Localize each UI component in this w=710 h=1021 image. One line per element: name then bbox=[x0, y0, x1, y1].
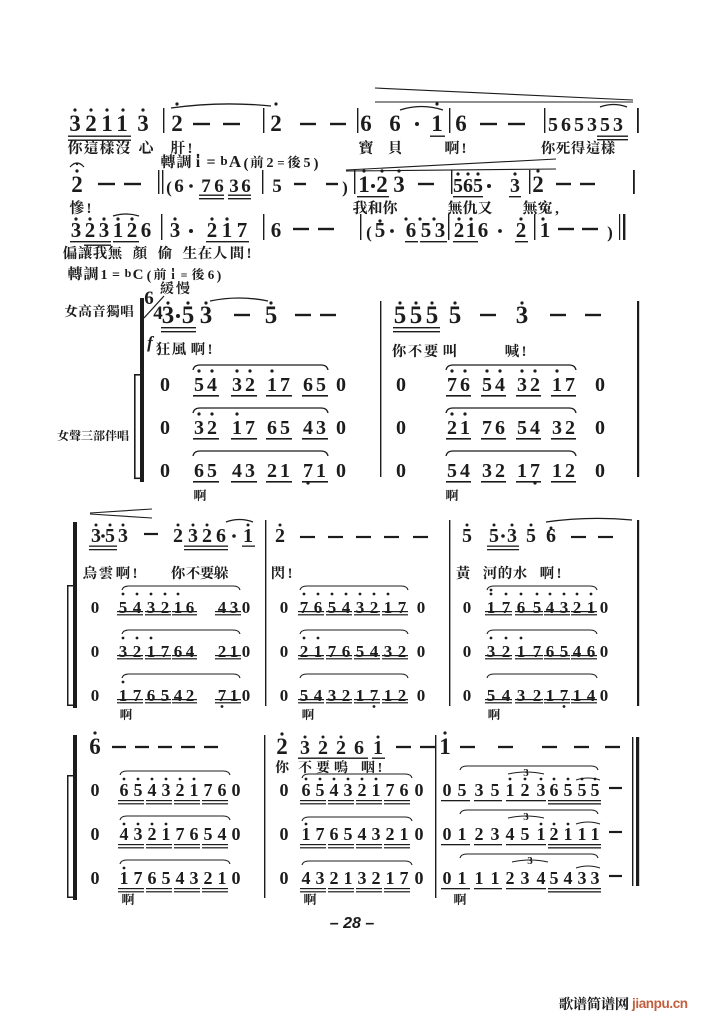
svg-text:0: 0 bbox=[443, 868, 452, 888]
svg-text:0: 0 bbox=[417, 598, 426, 617]
svg-text:1: 1 bbox=[344, 868, 353, 888]
svg-text:5: 5 bbox=[447, 460, 457, 482]
svg-text:2: 2 bbox=[276, 734, 288, 759]
svg-text:4: 4 bbox=[174, 686, 183, 705]
svg-text:0: 0 bbox=[415, 868, 424, 888]
svg-text:2: 2 bbox=[372, 868, 381, 888]
svg-text:1: 1 bbox=[243, 525, 253, 547]
svg-text:1: 1 bbox=[587, 598, 596, 617]
svg-text:4: 4 bbox=[302, 868, 311, 888]
svg-text:5: 5 bbox=[426, 302, 439, 329]
svg-text:4: 4 bbox=[148, 780, 157, 800]
svg-text:0: 0 bbox=[232, 868, 241, 888]
svg-text:7: 7 bbox=[316, 824, 325, 844]
svg-text:2: 2 bbox=[330, 868, 339, 888]
svg-text:2: 2 bbox=[171, 111, 183, 136]
svg-text:6: 6 bbox=[463, 175, 473, 197]
svg-text:3: 3 bbox=[591, 868, 600, 888]
svg-text:4: 4 bbox=[587, 686, 596, 705]
svg-text:7: 7 bbox=[245, 417, 255, 439]
svg-text:1: 1 bbox=[573, 686, 582, 705]
svg-text:2: 2 bbox=[342, 686, 351, 705]
svg-text:5: 5 bbox=[316, 780, 325, 800]
svg-text:3: 3 bbox=[537, 780, 546, 800]
svg-text:0: 0 bbox=[242, 642, 251, 661]
svg-text:6: 6 bbox=[174, 176, 184, 197]
svg-text:7: 7 bbox=[533, 642, 542, 661]
svg-text:6: 6 bbox=[406, 218, 417, 242]
svg-text:7: 7 bbox=[370, 686, 379, 705]
svg-text:5: 5 bbox=[344, 824, 353, 844]
svg-text:3: 3 bbox=[491, 824, 500, 844]
svg-text:0: 0 bbox=[160, 417, 170, 439]
svg-text:5: 5 bbox=[182, 302, 195, 329]
svg-text:1: 1 bbox=[460, 417, 470, 439]
svg-text:7: 7 bbox=[328, 642, 337, 661]
svg-text:3: 3 bbox=[516, 302, 529, 329]
svg-text:3: 3 bbox=[487, 642, 496, 661]
svg-text:5: 5 bbox=[394, 302, 407, 329]
svg-text:2: 2 bbox=[161, 598, 170, 617]
svg-text:0: 0 bbox=[91, 598, 100, 617]
svg-text:): ) bbox=[607, 223, 613, 242]
svg-text:2: 2 bbox=[218, 642, 227, 661]
svg-text:6: 6 bbox=[186, 598, 195, 617]
svg-text:1: 1 bbox=[302, 824, 311, 844]
svg-text:0: 0 bbox=[160, 460, 170, 482]
svg-text:1: 1 bbox=[458, 868, 467, 888]
svg-text:b: b bbox=[220, 153, 227, 168]
svg-text:1: 1 bbox=[546, 686, 555, 705]
svg-text:2: 2 bbox=[502, 642, 511, 661]
svg-text:6: 6 bbox=[89, 734, 101, 759]
svg-text:3: 3 bbox=[372, 824, 381, 844]
svg-text:7: 7 bbox=[218, 686, 227, 705]
svg-text:!: ! bbox=[188, 141, 193, 157]
svg-text:0: 0 bbox=[280, 824, 289, 844]
svg-text:4: 4 bbox=[530, 417, 540, 439]
svg-text:5: 5 bbox=[560, 642, 569, 661]
svg-text:3: 3 bbox=[328, 686, 337, 705]
svg-text:6: 6 bbox=[302, 780, 311, 800]
svg-text:2: 2 bbox=[565, 460, 575, 482]
svg-text:2: 2 bbox=[85, 218, 96, 242]
svg-text:6: 6 bbox=[218, 780, 227, 800]
svg-text:5: 5 bbox=[482, 374, 492, 396]
svg-text:1: 1 bbox=[230, 686, 239, 705]
svg-text:1: 1 bbox=[400, 824, 409, 844]
svg-text:7: 7 bbox=[204, 780, 213, 800]
svg-text:6: 6 bbox=[478, 218, 489, 242]
svg-text:2: 2 bbox=[475, 824, 484, 844]
svg-text:jianpu.cn: jianpu.cn bbox=[631, 996, 688, 1011]
svg-text:2: 2 bbox=[318, 737, 328, 759]
svg-text:5: 5 bbox=[462, 525, 472, 547]
svg-text:3: 3 bbox=[517, 374, 527, 396]
svg-text:4: 4 bbox=[573, 642, 582, 661]
svg-text:3: 3 bbox=[245, 460, 255, 482]
svg-text:0: 0 bbox=[463, 598, 472, 617]
svg-text:2: 2 bbox=[516, 218, 527, 242]
svg-text:2: 2 bbox=[336, 737, 346, 759]
svg-text:5: 5 bbox=[134, 780, 143, 800]
svg-text:4: 4 bbox=[342, 598, 351, 617]
svg-text:1: 1 bbox=[578, 824, 587, 844]
svg-text:!: ! bbox=[247, 246, 252, 262]
svg-text:3: 3 bbox=[188, 525, 198, 547]
svg-text:5: 5 bbox=[421, 218, 432, 242]
svg-text:1: 1 bbox=[232, 417, 242, 439]
svg-text:3: 3 bbox=[507, 525, 517, 547]
svg-text:): ) bbox=[314, 156, 319, 172]
svg-text:1: 1 bbox=[537, 824, 546, 844]
svg-text:=: = bbox=[206, 154, 215, 171]
svg-text:2: 2 bbox=[207, 218, 218, 242]
svg-text:7: 7 bbox=[482, 417, 492, 439]
svg-text:0: 0 bbox=[415, 824, 424, 844]
svg-text:6: 6 bbox=[455, 111, 467, 136]
svg-text:4: 4 bbox=[303, 417, 313, 439]
svg-text:2: 2 bbox=[85, 111, 97, 136]
svg-text:7: 7 bbox=[502, 598, 511, 617]
svg-text:5: 5 bbox=[356, 642, 365, 661]
svg-text:0: 0 bbox=[463, 642, 472, 661]
svg-text:2: 2 bbox=[530, 374, 540, 396]
svg-text:4: 4 bbox=[330, 780, 339, 800]
svg-text:3: 3 bbox=[200, 302, 213, 329]
svg-text:3: 3 bbox=[475, 780, 484, 800]
svg-text:3: 3 bbox=[170, 218, 181, 242]
svg-text:6: 6 bbox=[561, 114, 571, 136]
svg-text:7: 7 bbox=[398, 598, 407, 617]
svg-text:7: 7 bbox=[386, 780, 395, 800]
svg-text:6: 6 bbox=[342, 642, 351, 661]
svg-text:3: 3 bbox=[190, 868, 199, 888]
svg-text:1: 1 bbox=[120, 868, 129, 888]
svg-text:0: 0 bbox=[91, 642, 100, 661]
svg-text:1: 1 bbox=[491, 868, 500, 888]
svg-text:=: = bbox=[277, 155, 284, 170]
svg-text:1: 1 bbox=[384, 686, 393, 705]
svg-text:4: 4 bbox=[176, 868, 185, 888]
svg-text:1: 1 bbox=[552, 460, 562, 482]
svg-text:5: 5 bbox=[119, 598, 128, 617]
svg-text:2: 2 bbox=[358, 780, 367, 800]
svg-text:!: ! bbox=[208, 342, 213, 358]
svg-text:6: 6 bbox=[550, 780, 559, 800]
svg-text:5: 5 bbox=[548, 114, 558, 136]
svg-text:4: 4 bbox=[495, 374, 505, 396]
svg-text:3: 3 bbox=[521, 868, 530, 888]
svg-text:6: 6 bbox=[214, 176, 224, 197]
svg-text:5: 5 bbox=[491, 780, 500, 800]
svg-text:6: 6 bbox=[330, 824, 339, 844]
svg-text:1: 1 bbox=[230, 642, 239, 661]
svg-text:1: 1 bbox=[552, 374, 562, 396]
svg-text:7: 7 bbox=[400, 868, 409, 888]
svg-text:3: 3 bbox=[517, 686, 526, 705]
svg-text:0: 0 bbox=[280, 686, 289, 705]
svg-text:0: 0 bbox=[463, 686, 472, 705]
svg-text:3: 3 bbox=[162, 780, 171, 800]
svg-text:2: 2 bbox=[300, 642, 309, 661]
svg-text:3: 3 bbox=[613, 114, 623, 136]
svg-text:4: 4 bbox=[218, 824, 227, 844]
svg-text:1: 1 bbox=[116, 111, 128, 136]
svg-text:7: 7 bbox=[280, 374, 290, 396]
svg-text:1: 1 bbox=[174, 598, 183, 617]
svg-text:1: 1 bbox=[591, 824, 600, 844]
svg-text:3: 3 bbox=[99, 218, 110, 242]
svg-text:3: 3 bbox=[523, 811, 529, 823]
svg-text:(: ( bbox=[244, 156, 249, 172]
svg-text:5: 5 bbox=[521, 824, 530, 844]
svg-text:2: 2 bbox=[275, 525, 285, 547]
svg-text:4: 4 bbox=[232, 460, 242, 482]
svg-text:3: 3 bbox=[147, 598, 156, 617]
svg-text:(: ( bbox=[166, 178, 172, 197]
svg-text:0: 0 bbox=[595, 417, 605, 439]
svg-text:7: 7 bbox=[201, 176, 211, 197]
svg-text:2: 2 bbox=[573, 598, 582, 617]
svg-text:b: b bbox=[125, 266, 132, 280]
svg-text:0: 0 bbox=[91, 824, 100, 844]
svg-text:2: 2 bbox=[202, 525, 212, 547]
svg-text:0: 0 bbox=[595, 460, 605, 482]
svg-text:3: 3 bbox=[194, 417, 204, 439]
svg-text:(: ( bbox=[366, 223, 372, 242]
svg-text:2: 2 bbox=[267, 460, 277, 482]
svg-text:0: 0 bbox=[336, 460, 346, 482]
svg-text:6: 6 bbox=[546, 642, 555, 661]
svg-text:2: 2 bbox=[176, 780, 185, 800]
svg-text:5: 5 bbox=[564, 780, 573, 800]
svg-text:6: 6 bbox=[400, 780, 409, 800]
svg-text:!: ! bbox=[133, 566, 138, 582]
svg-text:7: 7 bbox=[565, 374, 575, 396]
svg-text:6: 6 bbox=[495, 417, 505, 439]
svg-text:0: 0 bbox=[280, 780, 289, 800]
svg-text:0: 0 bbox=[417, 642, 426, 661]
svg-text:2: 2 bbox=[204, 868, 213, 888]
svg-text:2: 2 bbox=[454, 218, 465, 242]
svg-text:0: 0 bbox=[242, 598, 251, 617]
svg-text:0: 0 bbox=[336, 374, 346, 396]
svg-text:1: 1 bbox=[119, 686, 128, 705]
svg-text:!: ! bbox=[462, 141, 467, 157]
svg-text:5: 5 bbox=[410, 302, 423, 329]
svg-text:4: 4 bbox=[314, 686, 323, 705]
svg-text:5: 5 bbox=[161, 686, 170, 705]
svg-text:3: 3 bbox=[560, 598, 569, 617]
svg-text:1: 1 bbox=[458, 824, 467, 844]
svg-text:4: 4 bbox=[120, 824, 129, 844]
svg-text:6: 6 bbox=[389, 111, 401, 136]
svg-text:6: 6 bbox=[241, 176, 251, 197]
svg-text:3: 3 bbox=[344, 780, 353, 800]
svg-text:0: 0 bbox=[91, 780, 100, 800]
svg-text:1: 1 bbox=[540, 218, 551, 242]
svg-text:3: 3 bbox=[358, 868, 367, 888]
svg-text:1: 1 bbox=[280, 460, 290, 482]
svg-text:): ) bbox=[217, 269, 222, 284]
svg-text:3: 3 bbox=[69, 111, 81, 136]
svg-text:1: 1 bbox=[316, 460, 326, 482]
svg-text:A: A bbox=[229, 152, 242, 171]
svg-text:3: 3 bbox=[510, 175, 520, 197]
svg-text:4: 4 bbox=[218, 598, 227, 617]
svg-text:4: 4 bbox=[460, 460, 470, 482]
svg-text:3: 3 bbox=[118, 525, 128, 547]
svg-text:0: 0 bbox=[280, 598, 289, 617]
svg-text:0: 0 bbox=[443, 824, 452, 844]
svg-text:7: 7 bbox=[134, 868, 143, 888]
svg-text:1: 1 bbox=[466, 218, 477, 242]
svg-text:5: 5 bbox=[204, 824, 213, 844]
svg-text:2: 2 bbox=[148, 824, 157, 844]
svg-text:5: 5 bbox=[280, 417, 290, 439]
svg-text:1: 1 bbox=[487, 598, 496, 617]
svg-text:– 28 –: – 28 – bbox=[330, 915, 375, 932]
svg-text:3: 3 bbox=[482, 460, 492, 482]
svg-text:5: 5 bbox=[105, 525, 115, 547]
svg-text:4: 4 bbox=[370, 642, 379, 661]
svg-text:1: 1 bbox=[384, 598, 393, 617]
svg-text:4: 4 bbox=[537, 868, 546, 888]
svg-text:3: 3 bbox=[316, 417, 326, 439]
svg-text:2: 2 bbox=[127, 218, 138, 242]
svg-text:=: = bbox=[112, 268, 120, 283]
svg-text:C: C bbox=[133, 267, 144, 283]
svg-text:6: 6 bbox=[216, 525, 226, 547]
svg-text:2: 2 bbox=[565, 417, 575, 439]
svg-text:6: 6 bbox=[194, 460, 204, 482]
svg-text:1: 1 bbox=[113, 218, 124, 242]
svg-text:0: 0 bbox=[280, 642, 289, 661]
svg-text:!: ! bbox=[288, 566, 293, 582]
svg-text:!: ! bbox=[87, 201, 92, 217]
svg-text:3: 3 bbox=[384, 642, 393, 661]
svg-text:2: 2 bbox=[521, 780, 530, 800]
svg-text:0: 0 bbox=[336, 417, 346, 439]
svg-text:4: 4 bbox=[186, 642, 195, 661]
svg-text:4: 4 bbox=[546, 598, 555, 617]
svg-text:7: 7 bbox=[530, 460, 540, 482]
svg-text:5: 5 bbox=[600, 114, 610, 136]
svg-text:6: 6 bbox=[314, 598, 323, 617]
svg-text:3: 3 bbox=[91, 525, 101, 547]
svg-text:2: 2 bbox=[398, 686, 407, 705]
svg-text:5: 5 bbox=[574, 114, 584, 136]
svg-text:0: 0 bbox=[91, 868, 100, 888]
svg-text:1: 1 bbox=[431, 111, 443, 136]
svg-text:1: 1 bbox=[373, 737, 383, 759]
svg-text:3: 3 bbox=[119, 642, 128, 661]
svg-text:0: 0 bbox=[242, 686, 251, 705]
svg-text:0: 0 bbox=[600, 686, 609, 705]
svg-text:5: 5 bbox=[591, 780, 600, 800]
svg-text:5: 5 bbox=[517, 417, 527, 439]
svg-text:5: 5 bbox=[550, 868, 559, 888]
svg-text:6: 6 bbox=[141, 218, 152, 242]
svg-text:2: 2 bbox=[245, 374, 255, 396]
svg-text:3: 3 bbox=[230, 598, 239, 617]
svg-text:1: 1 bbox=[439, 734, 451, 759]
svg-text:5: 5 bbox=[526, 525, 536, 547]
svg-text:3: 3 bbox=[552, 417, 562, 439]
svg-text:6: 6 bbox=[354, 737, 364, 759]
svg-text:5: 5 bbox=[473, 175, 483, 197]
svg-text:6: 6 bbox=[517, 598, 526, 617]
svg-text:7: 7 bbox=[161, 642, 170, 661]
svg-text:0: 0 bbox=[415, 780, 424, 800]
svg-text:0: 0 bbox=[280, 868, 289, 888]
svg-text:5: 5 bbox=[453, 175, 463, 197]
svg-text:0: 0 bbox=[443, 780, 452, 800]
svg-text:7: 7 bbox=[300, 598, 309, 617]
svg-text:6: 6 bbox=[360, 111, 372, 136]
svg-text:1: 1 bbox=[162, 824, 171, 844]
svg-text:2: 2 bbox=[133, 642, 142, 661]
svg-text:2: 2 bbox=[386, 824, 395, 844]
svg-text:6: 6 bbox=[174, 642, 183, 661]
svg-text:3: 3 bbox=[134, 824, 143, 844]
svg-text:1: 1 bbox=[517, 642, 526, 661]
svg-text:3: 3 bbox=[578, 868, 587, 888]
svg-text:1: 1 bbox=[147, 642, 156, 661]
svg-text:5: 5 bbox=[533, 598, 542, 617]
svg-text:3: 3 bbox=[316, 868, 325, 888]
svg-text:1: 1 bbox=[101, 268, 108, 283]
svg-text:2: 2 bbox=[533, 686, 542, 705]
svg-text:5: 5 bbox=[328, 598, 337, 617]
svg-text:6: 6 bbox=[303, 374, 313, 396]
svg-text:3: 3 bbox=[229, 176, 239, 197]
svg-text:1: 1 bbox=[218, 868, 227, 888]
svg-text:0: 0 bbox=[91, 686, 100, 705]
svg-text:7: 7 bbox=[303, 460, 313, 482]
svg-text:1: 1 bbox=[506, 780, 515, 800]
svg-text:6: 6 bbox=[271, 218, 282, 242]
svg-text:6: 6 bbox=[147, 686, 156, 705]
svg-text:2: 2 bbox=[376, 172, 388, 197]
svg-text:6: 6 bbox=[587, 642, 596, 661]
svg-text:7: 7 bbox=[237, 218, 248, 242]
svg-text:4: 4 bbox=[564, 868, 573, 888]
svg-text:3: 3 bbox=[393, 172, 405, 197]
svg-text:7: 7 bbox=[133, 686, 142, 705]
svg-text:5: 5 bbox=[162, 868, 171, 888]
svg-text:3: 3 bbox=[435, 218, 446, 242]
svg-text:(: ( bbox=[147, 269, 152, 284]
svg-text:0: 0 bbox=[600, 642, 609, 661]
svg-text:i: i bbox=[196, 154, 201, 171]
svg-text:6: 6 bbox=[190, 824, 199, 844]
svg-text:1: 1 bbox=[517, 460, 527, 482]
svg-text:3: 3 bbox=[137, 111, 149, 136]
svg-text:0: 0 bbox=[600, 598, 609, 617]
svg-text:5: 5 bbox=[194, 374, 204, 396]
svg-text:2: 2 bbox=[267, 156, 274, 171]
svg-text:5: 5 bbox=[316, 374, 326, 396]
svg-text:5: 5 bbox=[304, 156, 311, 171]
svg-text:5: 5 bbox=[578, 780, 587, 800]
svg-text:1: 1 bbox=[356, 686, 365, 705]
svg-text:5: 5 bbox=[272, 176, 282, 197]
svg-text:2: 2 bbox=[207, 417, 217, 439]
svg-text:2: 2 bbox=[71, 172, 83, 197]
svg-text:4: 4 bbox=[133, 598, 142, 617]
